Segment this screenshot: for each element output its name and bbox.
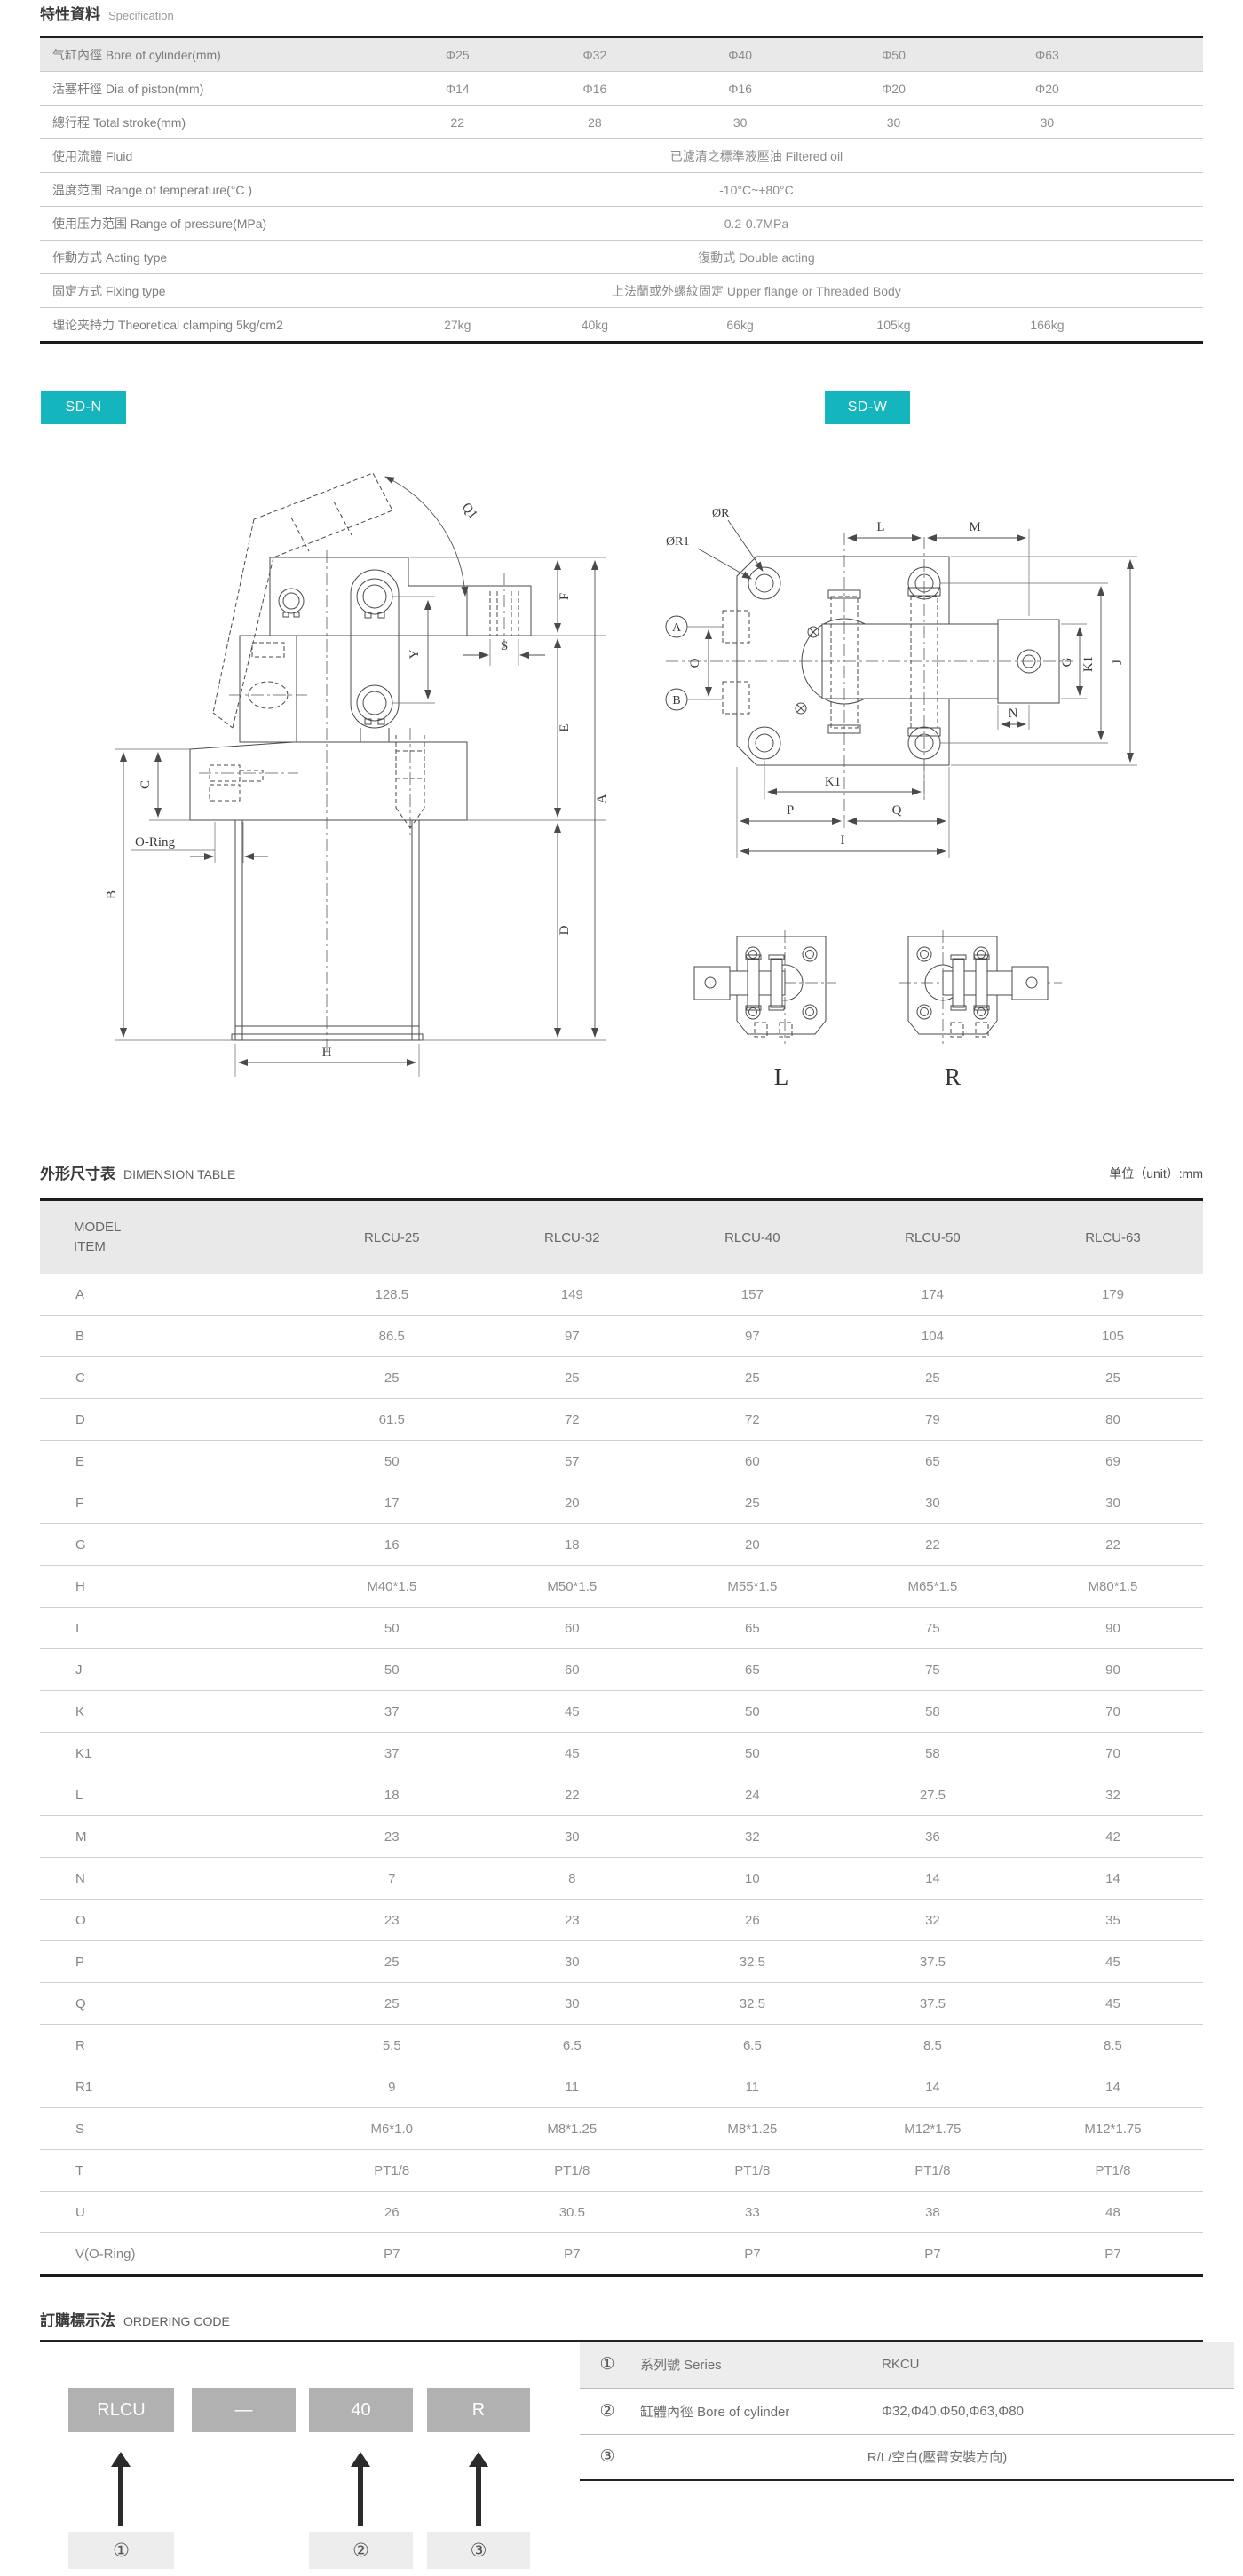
dimension-value: 32.5: [662, 1983, 843, 2025]
col-rlcu-32: RLCU-32: [482, 1200, 662, 1275]
dimension-value: 33: [662, 2192, 843, 2233]
spec-cell: Φ20: [817, 72, 970, 106]
dimension-row: Q253032.537.545: [40, 1983, 1203, 2025]
dimension-value: 8.5: [1023, 2025, 1203, 2066]
ordering-row-number: ③: [580, 2434, 635, 2480]
spec-row: 理论夹持力 Theoretical clamping 5kg/cm227kg40…: [40, 308, 1203, 343]
dimension-value: 23: [302, 1900, 482, 1941]
label-or: ØR: [712, 507, 730, 520]
side-slots: [723, 611, 749, 714]
dimension-value: 14: [1023, 1858, 1203, 1900]
dimension-value: 24: [662, 1774, 843, 1816]
badge-sd-w: SD-W: [825, 391, 910, 424]
ordering-row-number: ②: [580, 2388, 635, 2434]
dimension-value: 11: [662, 2066, 843, 2108]
dimension-value: PT1/8: [302, 2150, 482, 2192]
dimension-value: 36: [843, 1816, 1023, 1858]
drawing-sd-w: A B O ØR ØR1 L M G K1 J N K1: [657, 497, 1154, 870]
label-j: J: [1111, 660, 1125, 665]
spec-row: 温度范围 Range of temperature(°C )-10°C~+80°…: [40, 173, 1203, 207]
dimension-row: B86.59797104105: [40, 1316, 1203, 1357]
spec-span-cell: 上法蘭或外螺紋固定 Upper flange or Threaded Body: [389, 274, 1124, 308]
dimension-value: 22: [1023, 1524, 1203, 1566]
spec-filler-cell: [1124, 106, 1203, 139]
dimension-value: 45: [1023, 1941, 1203, 1983]
dimension-value: M40*1.5: [302, 1566, 482, 1608]
dimension-value: 8.5: [843, 2025, 1023, 2066]
dimension-value: 23: [482, 1900, 662, 1941]
dimension-item: L: [40, 1774, 302, 1816]
dimension-row: R5.56.56.58.58.5: [40, 2025, 1203, 2066]
dimension-value: P7: [1023, 2233, 1203, 2276]
dimension-value: PT1/8: [662, 2150, 843, 2192]
dimension-item: D: [40, 1399, 302, 1441]
dimension-item: B: [40, 1316, 302, 1357]
dimension-value: 30: [482, 1941, 662, 1983]
dimension-row: E5057606569: [40, 1441, 1203, 1482]
dimension-value: 157: [662, 1274, 843, 1316]
spec-row-label: 活塞杆徑 Dia of piston(mm): [40, 72, 389, 106]
label-a: A: [595, 794, 609, 803]
spec-row-label: 理论夹持力 Theoretical clamping 5kg/cm2: [40, 308, 389, 343]
item-line: ITEM: [74, 1237, 301, 1257]
dimension-value: 27.5: [843, 1774, 1023, 1816]
drawing-variants-lr: L R: [693, 923, 1065, 1101]
dimension-item: P: [40, 1941, 302, 1983]
dimension-value: 128.5: [302, 1274, 482, 1316]
ordering-row-value: R/L/空白(壓臂安裝方向): [635, 2434, 1234, 2480]
dimension-value: M8*1.25: [482, 2108, 662, 2150]
ordering-row-label: 缸體內徑 Bore of cylinder: [635, 2388, 876, 2434]
dimension-row: SM6*1.0M8*1.25M8*1.25M12*1.75M12*1.75: [40, 2108, 1203, 2150]
dimension-value: 65: [662, 1649, 843, 1691]
dimension-item: R1: [40, 2066, 302, 2108]
col-rlcu-40: RLCU-40: [662, 1200, 843, 1275]
ordering-section-title: 訂購標示法ORDERING CODE: [40, 2308, 230, 2330]
dimension-item: G: [40, 1524, 302, 1566]
label-o: O: [688, 658, 702, 668]
spec-filler-cell: [1124, 274, 1203, 308]
dimension-value: 16: [302, 1524, 482, 1566]
dimension-value: 58: [843, 1691, 1023, 1733]
spec-row-label: 使用流體 Fluid: [40, 139, 389, 173]
label-b: B: [105, 890, 119, 899]
dimension-value: 86.5: [302, 1316, 482, 1357]
spec-row-label: 使用压力范围 Range of pressure(MPa): [40, 207, 389, 241]
dim-title-en: DIMENSION TABLE: [123, 1167, 235, 1181]
spec-span-cell: 0.2-0.7MPa: [389, 207, 1124, 241]
label-m: M: [969, 520, 980, 534]
dimension-value: 22: [482, 1774, 662, 1816]
spec-cell: 27kg: [389, 308, 526, 343]
dimension-item: I: [40, 1608, 302, 1649]
label-variant-l: L: [774, 1063, 789, 1090]
link-and-guide: [229, 570, 399, 742]
dimension-value: 72: [662, 1399, 843, 1441]
dimension-value: 70: [1023, 1733, 1203, 1774]
dimension-row: K3745505870: [40, 1691, 1203, 1733]
ordering-row-value: RKCU: [876, 2342, 1234, 2388]
unit-label: 单位（unit）:mm: [1109, 1165, 1203, 1182]
dimension-value: 35: [1023, 1900, 1203, 1941]
callout-1: ①: [68, 2532, 174, 2569]
dimension-value: 8: [482, 1858, 662, 1900]
spec-cell: Φ40: [663, 37, 817, 72]
code-box-dash: —: [192, 2388, 296, 2432]
dimension-row: M2330323642: [40, 1816, 1203, 1858]
dimension-value: 6.5: [662, 2025, 843, 2066]
dimension-value: 45: [1023, 1983, 1203, 2025]
dimension-item: O: [40, 1900, 302, 1941]
dimension-value: 97: [662, 1316, 843, 1357]
dimension-value: 37: [302, 1691, 482, 1733]
dimension-value: 90: [1023, 1649, 1203, 1691]
specification-table: 气缸內徑 Bore of cylinder(mm)Φ25Φ32Φ40Φ50Φ63…: [40, 36, 1203, 344]
label-variant-r: R: [945, 1063, 961, 1090]
dimension-value: M50*1.5: [482, 1566, 662, 1608]
dimension-value: 80: [1023, 1399, 1203, 1441]
dimension-value: M8*1.25: [662, 2108, 843, 2150]
dimension-value: 79: [843, 1399, 1023, 1441]
dimension-item: R: [40, 2025, 302, 2066]
drawing-sd-n: Q1 Y: [80, 466, 630, 1105]
spec-filler-cell: [1124, 241, 1203, 274]
label-e: E: [558, 723, 572, 731]
col-rlcu-25: RLCU-25: [302, 1200, 482, 1275]
flange: [190, 728, 467, 837]
spec-row-label: 作動方式 Acting type: [40, 241, 389, 274]
dimension-value: 65: [843, 1441, 1023, 1482]
dimension-value: 7: [302, 1858, 482, 1900]
set-screws: [796, 627, 819, 714]
dimension-value: 25: [662, 1357, 843, 1399]
dimension-value: M6*1.0: [302, 2108, 482, 2150]
dimension-row: D61.572727980: [40, 1399, 1203, 1441]
spec-filler-cell: [1124, 207, 1203, 241]
dimension-table-header: MODEL ITEM RLCU-25 RLCU-32 RLCU-40 RLCU-…: [40, 1200, 1203, 1275]
spec-row: 固定方式 Fixing type上法蘭或外螺紋固定 Upper flange o…: [40, 274, 1203, 308]
spec-row-label: 温度范围 Range of temperature(°C ): [40, 173, 389, 207]
dimension-value: 149: [482, 1274, 662, 1316]
spec-filler-cell: [1124, 37, 1203, 72]
dimension-value: 10: [662, 1858, 843, 1900]
dimension-table: MODEL ITEM RLCU-25 RLCU-32 RLCU-40 RLCU-…: [40, 1198, 1203, 2277]
dimension-value: 6.5: [482, 2025, 662, 2066]
ordering-row-label: 系列號 Series: [635, 2342, 876, 2388]
dimension-value: 75: [843, 1649, 1023, 1691]
spec-row-label: 總行程 Total stroke(mm): [40, 106, 389, 139]
spec-filler-cell: [1124, 173, 1203, 207]
dimension-row: C2525252525: [40, 1357, 1203, 1399]
spec-span-cell: 復動式 Double acting: [389, 241, 1124, 274]
dimension-item: S: [40, 2108, 302, 2150]
dimension-value: 61.5: [302, 1399, 482, 1441]
dimension-value: 60: [482, 1649, 662, 1691]
spec-cell: Φ50: [817, 37, 970, 72]
clamp-head: [270, 557, 531, 648]
dimension-value: 104: [843, 1316, 1023, 1357]
dimension-value: 69: [1023, 1441, 1203, 1482]
col-rlcu-63: RLCU-63: [1023, 1200, 1203, 1275]
ordering-title-zh: 訂購標示法: [40, 2312, 115, 2329]
dimension-value: 30: [1023, 1482, 1203, 1524]
label-or1: ØR1: [666, 535, 689, 549]
spec-row-label: 固定方式 Fixing type: [40, 274, 389, 308]
dimension-value: 48: [1023, 2192, 1203, 2233]
dimension-row: V(O-Ring)P7P7P7P7P7: [40, 2233, 1203, 2276]
arrow-up-1: [111, 2452, 131, 2526]
spec-span-cell: 已濾清之標準液壓油 Filtered oil: [389, 139, 1124, 173]
ordering-row-number: ①: [580, 2342, 635, 2388]
spec-cell: Φ25: [389, 37, 526, 72]
label-y: Y: [408, 649, 422, 659]
dimension-value: 14: [843, 2066, 1023, 2108]
dimension-value: 9: [302, 2066, 482, 2108]
ordering-code-table: ①系列號 SeriesRKCU②缸體內徑 Bore of cylinderΦ32…: [580, 2342, 1234, 2481]
label-g: G: [1060, 657, 1074, 667]
dimension-value: 11: [482, 2066, 662, 2108]
dimension-value: M12*1.75: [843, 2108, 1023, 2150]
dimension-value: P7: [843, 2233, 1023, 2276]
spec-cell: Φ14: [389, 72, 526, 106]
dimension-value: 70: [1023, 1691, 1203, 1733]
code-box-series: RLCU: [68, 2388, 174, 2432]
dimension-value: 25: [302, 1357, 482, 1399]
ordering-row: ①系列號 SeriesRKCU: [580, 2342, 1234, 2388]
spec-cell: Φ16: [526, 72, 664, 106]
dimension-value: 57: [482, 1441, 662, 1482]
ordering-table-body: ①系列號 SeriesRKCU②缸體內徑 Bore of cylinderΦ32…: [580, 2342, 1234, 2480]
dimension-value: 50: [302, 1441, 482, 1482]
spec-cell: 66kg: [663, 308, 817, 343]
dimension-value: M80*1.5: [1023, 1566, 1203, 1608]
spec-row: 作動方式 Acting type復動式 Double acting: [40, 241, 1203, 274]
dimension-value: 14: [1023, 2066, 1203, 2108]
spec-cell: Φ20: [970, 72, 1124, 106]
spec-title-zh: 特性資料: [40, 6, 100, 23]
dimension-value: 25: [302, 1941, 482, 1983]
label-i: I: [841, 834, 845, 848]
dimension-value: 25: [302, 1983, 482, 2025]
dimension-item: J: [40, 1649, 302, 1691]
spec-cell: 105kg: [817, 308, 970, 343]
spec-span-cell: -10°C~+80°C: [389, 173, 1124, 207]
spec-row: 總行程 Total stroke(mm)2228303030: [40, 106, 1203, 139]
dimension-value: M65*1.5: [843, 1566, 1023, 1608]
dimension-value: PT1/8: [843, 2150, 1023, 2192]
dimension-row: L18222427.532: [40, 1774, 1203, 1816]
dimension-row: J5060657590: [40, 1649, 1203, 1691]
dimension-value: PT1/8: [1023, 2150, 1203, 2192]
dimension-row: N78101414: [40, 1858, 1203, 1900]
dimension-value: 30: [482, 1816, 662, 1858]
dimension-item: N: [40, 1858, 302, 1900]
dimension-value: 32: [662, 1816, 843, 1858]
dimension-section-title: 外形尺寸表DIMENSION TABLE: [40, 1161, 235, 1183]
variant-l-drawing: L: [694, 930, 836, 1090]
dimension-value: 75: [843, 1608, 1023, 1649]
dimension-value: 25: [662, 1482, 843, 1524]
dimension-value: 26: [302, 2192, 482, 2233]
spec-row: 气缸內徑 Bore of cylinder(mm)Φ25Φ32Φ40Φ50Φ63: [40, 37, 1203, 72]
dimension-value: M55*1.5: [662, 1566, 843, 1608]
label-o-ring: O-Ring: [135, 835, 176, 849]
dimension-item: A: [40, 1274, 302, 1316]
dimension-value: 38: [843, 2192, 1023, 2233]
label-q: Q: [892, 803, 902, 818]
dimension-value: 105: [1023, 1316, 1203, 1357]
label-mark-b: B: [672, 694, 680, 707]
dimension-item: K: [40, 1691, 302, 1733]
badge-sd-n: SD-N: [41, 391, 126, 424]
dimension-value: 30: [843, 1482, 1023, 1524]
dimension-value: 32.5: [662, 1941, 843, 1983]
dimension-value: 58: [843, 1733, 1023, 1774]
dimension-value: P7: [482, 2233, 662, 2276]
spec-row: 活塞杆徑 Dia of piston(mm)Φ14Φ16Φ16Φ20Φ20: [40, 72, 1203, 106]
dimension-value: 97: [482, 1316, 662, 1357]
label-k1-right: K1: [1081, 656, 1096, 672]
spec-filler-cell: [1124, 308, 1203, 343]
label-n: N: [1009, 707, 1018, 721]
ordering-row: ③R/L/空白(壓臂安裝方向): [580, 2434, 1234, 2480]
circlip-details: [279, 579, 392, 724]
label-mark-a: A: [672, 621, 682, 635]
code-box-bore: 40: [309, 2388, 413, 2432]
dimension-value: 5.5: [302, 2025, 482, 2066]
spec-filler-cell: [1124, 72, 1203, 106]
dimension-value: 90: [1023, 1608, 1203, 1649]
dimension-row: HM40*1.5M50*1.5M55*1.5M65*1.5M80*1.5: [40, 1566, 1203, 1608]
dimension-value: M12*1.75: [1023, 2108, 1203, 2150]
dimension-table-body: A128.5149157174179B86.59797104105C252525…: [40, 1274, 1203, 2276]
dimension-value: PT1/8: [482, 2150, 662, 2192]
dimension-value: 32: [1023, 1774, 1203, 1816]
dimension-value: 18: [302, 1774, 482, 1816]
ordering-row: ②缸體內徑 Bore of cylinderΦ32,Φ40,Φ50,Φ63,Φ8…: [580, 2388, 1234, 2434]
dimension-row: R1911111414: [40, 2066, 1203, 2108]
spec-cell: Φ32: [526, 37, 664, 72]
dimension-value: 26: [662, 1900, 843, 1941]
dimension-item: Q: [40, 1983, 302, 2025]
dimension-item: M: [40, 1816, 302, 1858]
dimension-item: V(O-Ring): [40, 2233, 302, 2276]
spec-cell: Φ63: [970, 37, 1124, 72]
dimension-value: P7: [302, 2233, 482, 2276]
callout-3: ③: [427, 2532, 530, 2569]
dimension-row: A128.5149157174179: [40, 1274, 1203, 1316]
dimension-value: 25: [482, 1357, 662, 1399]
dimension-item: C: [40, 1357, 302, 1399]
dim-header-row: MODEL ITEM RLCU-25 RLCU-32 RLCU-40 RLCU-…: [40, 1200, 1203, 1275]
dimension-value: 42: [1023, 1816, 1203, 1858]
dimension-value: 50: [302, 1649, 482, 1691]
spec-cell: 22: [389, 106, 526, 139]
dimension-value: 60: [482, 1608, 662, 1649]
dimension-value: 30.5: [482, 2192, 662, 2233]
dimension-row: TPT1/8PT1/8PT1/8PT1/8PT1/8: [40, 2150, 1203, 2192]
dimension-value: 45: [482, 1733, 662, 1774]
dimension-value: 23: [302, 1816, 482, 1858]
dimension-value: 179: [1023, 1274, 1203, 1316]
dimension-row: U2630.5333848: [40, 2192, 1203, 2233]
spec-table-body: 气缸內徑 Bore of cylinder(mm)Φ25Φ32Φ40Φ50Φ63…: [40, 37, 1203, 343]
label-s: S: [501, 639, 508, 653]
dimension-value: 17: [302, 1482, 482, 1524]
dimension-row: F1720253030: [40, 1482, 1203, 1524]
spec-row-label: 气缸內徑 Bore of cylinder(mm): [40, 37, 389, 72]
dimension-item: H: [40, 1566, 302, 1608]
dimension-value: 20: [662, 1524, 843, 1566]
arrow-up-3: [469, 2452, 488, 2526]
ordering-title-en: ORDERING CODE: [123, 2314, 230, 2328]
catalog-page: 特性資料Specification 气缸內徑 Bore of cylinder(…: [0, 0, 1243, 2576]
dimension-item: U: [40, 2192, 302, 2233]
label-f: F: [558, 593, 572, 600]
dimension-value: 30: [482, 1983, 662, 2025]
dimension-item: T: [40, 2150, 302, 2192]
label-l: L: [876, 520, 884, 534]
dimension-item: E: [40, 1441, 302, 1482]
spec-cell: 28: [526, 106, 664, 139]
dimension-value: 72: [482, 1399, 662, 1441]
dimension-value: 20: [482, 1482, 662, 1524]
spec-cell: 30: [663, 106, 817, 139]
spec-section-title: 特性資料Specification: [40, 2, 174, 24]
dimension-value: 65: [662, 1608, 843, 1649]
label-d: D: [558, 925, 572, 935]
dimension-value: 25: [843, 1357, 1023, 1399]
dimension-value: 22: [843, 1524, 1023, 1566]
dimension-value: 18: [482, 1524, 662, 1566]
model-item-cell: MODEL ITEM: [40, 1200, 302, 1275]
spec-cell: 30: [817, 106, 970, 139]
label-p: P: [787, 803, 794, 818]
dimension-value: 45: [482, 1691, 662, 1733]
dimension-row: I5060657590: [40, 1608, 1203, 1649]
spec-cell: 30: [970, 106, 1124, 139]
dim-title-zh: 外形尺寸表: [40, 1166, 115, 1182]
code-box-direction: R: [427, 2388, 530, 2432]
cylinder-body: [232, 820, 423, 1040]
dimension-value: 60: [662, 1441, 843, 1482]
dimension-value: 14: [843, 1858, 1023, 1900]
dimension-value: 50: [302, 1608, 482, 1649]
dimension-value: 32: [843, 1900, 1023, 1941]
spec-title-en: Specification: [108, 9, 174, 22]
dimension-item: K1: [40, 1733, 302, 1774]
dimension-value: P7: [662, 2233, 843, 2276]
swing-arc: [385, 477, 465, 596]
dimension-row: G1618202222: [40, 1524, 1203, 1566]
variant-r-drawing: R: [899, 930, 1062, 1090]
spec-row: 使用流體 Fluid已濾清之標準液壓油 Filtered oil: [40, 139, 1203, 173]
dimension-row: P253032.537.545: [40, 1941, 1203, 1983]
label-q1: Q1: [459, 501, 480, 522]
dimension-value: 50: [662, 1733, 843, 1774]
dimension-value: 37: [302, 1733, 482, 1774]
dimension-value: 37.5: [843, 1983, 1023, 2025]
dimension-value: 50: [662, 1691, 843, 1733]
dimension-value: 37.5: [843, 1941, 1023, 1983]
ordering-row-value: Φ32,Φ40,Φ50,Φ63,Φ80: [876, 2388, 1234, 2434]
label-h: H: [322, 1046, 332, 1060]
arrow-up-2: [351, 2452, 370, 2526]
spec-cell: Φ16: [663, 72, 817, 106]
label-c: C: [139, 780, 153, 789]
dimension-value: 174: [843, 1274, 1023, 1316]
spec-cell: 166kg: [970, 308, 1124, 343]
